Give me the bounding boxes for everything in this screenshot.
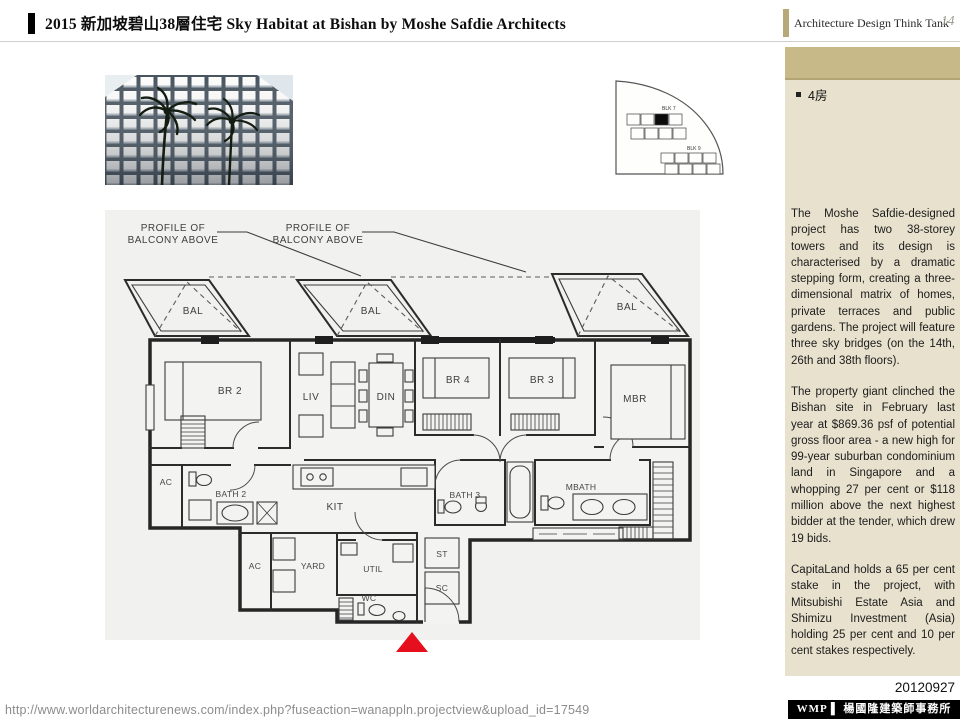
sidebar-khaki-band	[785, 47, 960, 80]
paragraph-project: The Moshe Safdie-designed project has tw…	[791, 206, 955, 369]
building-photo	[105, 75, 293, 185]
kitchen-fixtures	[293, 465, 435, 489]
room-label-bal3: BAL	[617, 302, 637, 313]
profile-label-1: PROFILE OF	[141, 223, 205, 234]
room-label-bal1: BAL	[183, 306, 203, 317]
balcony-profile-callouts: PROFILE OF BALCONY ABOVE PROFILE OF BALC…	[128, 223, 526, 276]
room-label-wc: WC	[362, 593, 377, 603]
page-title: 2015 新加坡碧山38層住宅 Sky Habitat at Bishan by…	[45, 12, 566, 34]
entry-marker-triangle	[396, 632, 428, 652]
room-label-bal2: BAL	[361, 306, 381, 317]
room-label-kit: KIT	[326, 502, 343, 513]
room-label-ac2: AC	[249, 561, 261, 571]
page-number: 14	[941, 13, 955, 29]
title-accent-bar	[28, 13, 35, 34]
room-label-din: DIN	[377, 392, 396, 403]
room-label-bath2: BATH 2	[216, 489, 247, 499]
brand-accent-bar	[783, 9, 789, 37]
profile-label-1b: BALCONY ABOVE	[128, 235, 219, 246]
paragraph-stakeholders: CapitaLand holds a 65 per cent stake in …	[791, 562, 955, 660]
profile-label-2: PROFILE OF	[286, 223, 350, 234]
sidebar-bullet-item: 4房	[796, 85, 827, 104]
room-label-br4: BR 4	[446, 375, 470, 386]
highlighted-unit	[655, 114, 668, 125]
firm-footer-bar: WMP ▌ 楊國隆建築師事務所	[788, 700, 960, 719]
blk7-label: BLK 7	[662, 106, 676, 112]
date-stamp: 20120927	[845, 680, 955, 695]
room-label-liv: LIV	[303, 392, 320, 403]
square-bullet-icon	[796, 92, 801, 97]
header-divider	[0, 41, 960, 42]
site-plan: BLK 7 BLK 9	[605, 72, 731, 187]
source-url-link[interactable]: http://www.worldarchitecturenews.com/ind…	[5, 703, 589, 717]
room-label-sc: SC	[436, 583, 448, 593]
room-label-br3: BR 3	[530, 375, 554, 386]
room-label-util: UTIL	[363, 564, 383, 574]
profile-label-2b: BALCONY ABOVE	[273, 235, 364, 246]
bullet-label: 4房	[808, 85, 827, 104]
room-label-ac1: AC	[160, 477, 172, 487]
room-label-st: ST	[436, 549, 447, 559]
room-label-br2: BR 2	[218, 386, 242, 397]
slide-page: { "header": { "title": "2015 新加坡碧山38層住宅 …	[0, 0, 960, 720]
room-label-yard: YARD	[301, 561, 325, 571]
floor-plan: PROFILE OF BALCONY ABOVE PROFILE OF BALC…	[105, 210, 700, 640]
room-label-mbr: MBR	[623, 394, 647, 405]
balconies: BAL BAL BAL	[125, 274, 688, 336]
paragraph-site-price: The property giant clinched the Bishan s…	[791, 384, 955, 547]
brand-text: Architecture Design Think Tank	[794, 16, 949, 31]
sidebar-paragraphs: The Moshe Safdie-designed project has tw…	[791, 206, 955, 675]
room-label-bath3: BATH 3	[450, 490, 481, 500]
room-label-mbath: MBATH	[566, 482, 597, 492]
blk9-label: BLK 9	[687, 146, 701, 152]
